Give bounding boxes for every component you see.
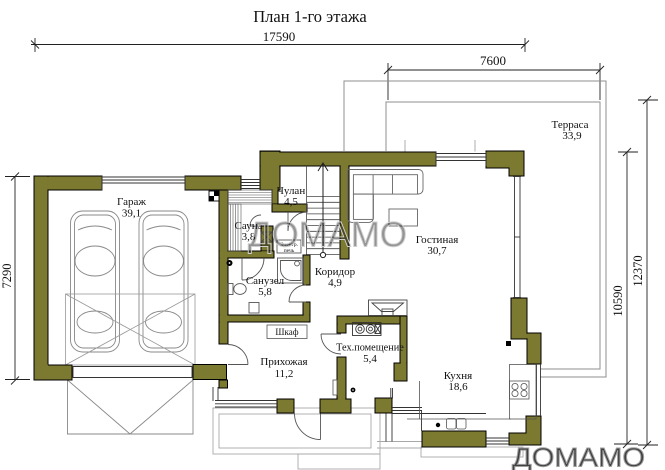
svg-text:Шкаф: Шкаф [275,327,298,337]
svg-text:12370: 12370 [631,255,645,286]
svg-text:7290: 7290 [0,264,14,289]
svg-text:7600: 7600 [480,53,506,68]
svg-text:18,6: 18,6 [448,381,468,393]
svg-text:4,5: 4,5 [284,196,298,208]
svg-text:ДОМАМО: ДОМАМО [512,443,645,470]
svg-text:11,2: 11,2 [275,368,294,380]
svg-text:10590: 10590 [611,285,625,316]
svg-text:4,9: 4,9 [328,277,342,289]
svg-text:Гараж: Гараж [117,196,146,208]
svg-text:39,1: 39,1 [122,208,141,220]
svg-text:Прихожая: Прихожая [260,356,307,368]
svg-text:17590: 17590 [263,29,296,44]
svg-text:Тех.помещение: Тех.помещение [336,343,404,354]
svg-text:30,7: 30,7 [427,245,447,257]
svg-text:33,9: 33,9 [562,130,582,142]
svg-text:ДОМАМО: ДОМАМО [248,216,407,255]
svg-text:5,8: 5,8 [258,286,272,298]
svg-text:5,4: 5,4 [363,353,377,365]
svg-text:План 1-го этажа: План 1-го этажа [253,7,367,26]
